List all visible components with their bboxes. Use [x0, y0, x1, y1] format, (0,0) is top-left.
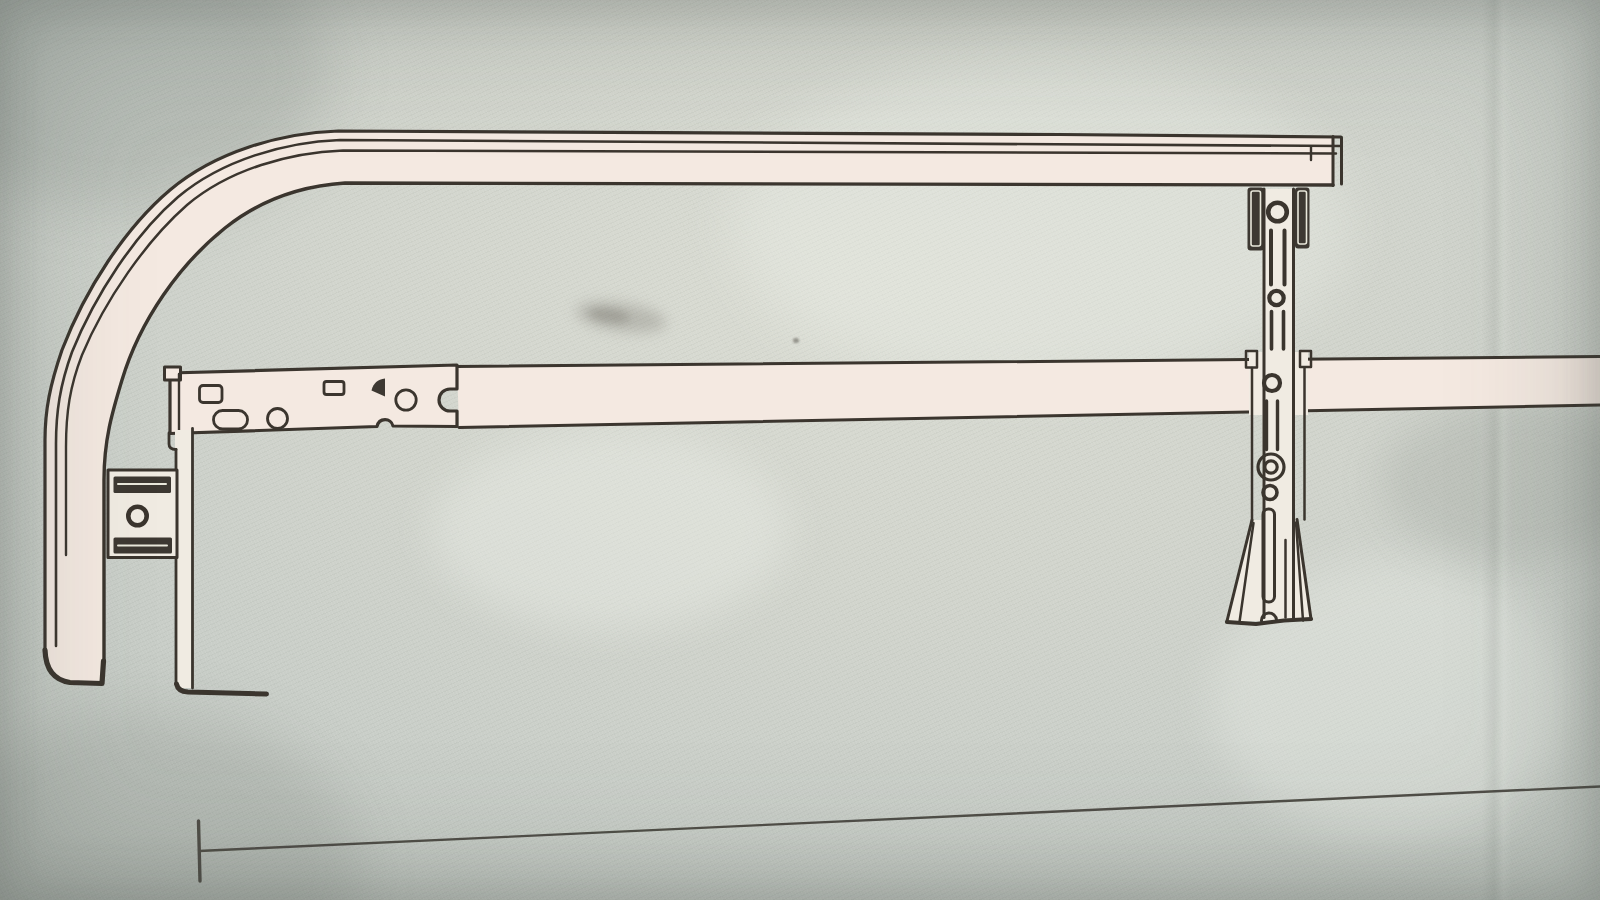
side-rail-line3: [66, 151, 1336, 556]
support-leg-bar: [169, 429, 267, 695]
hanger-clip-right: [1295, 188, 1310, 249]
leg-bar-step: [169, 433, 176, 450]
ground-reference-line: [199, 787, 1600, 882]
ground-line: [199, 787, 1600, 852]
middle-rail: [457, 356, 1600, 428]
end-bracket-plate: [165, 365, 458, 434]
assembly-diagram: [0, 0, 1600, 900]
diagram-ink: [45, 131, 1600, 881]
hanger-clip-left: [1248, 188, 1265, 251]
photographed-manual-page: [0, 0, 1600, 900]
rail-clamp: [108, 470, 177, 558]
